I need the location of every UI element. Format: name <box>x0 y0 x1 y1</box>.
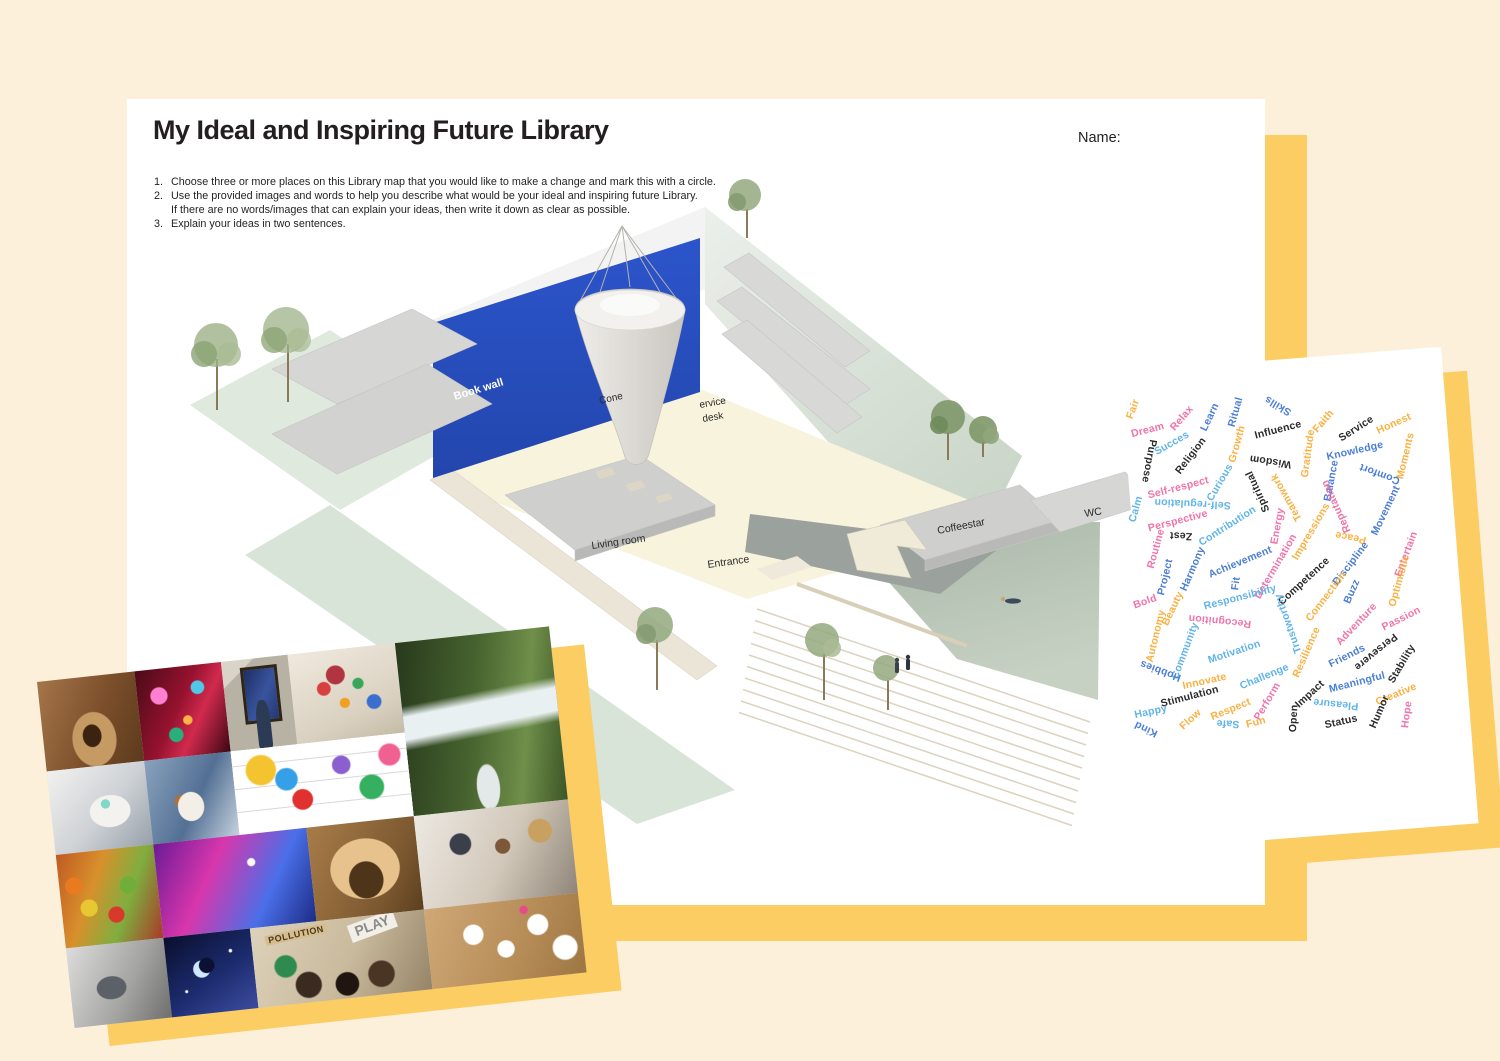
group-collaboration-photo <box>414 799 578 909</box>
value-word: Optimistic <box>1386 554 1412 609</box>
word-cloud: FairDreamRelaxLearnRitualSkillsInfluence… <box>1120 347 1479 849</box>
value-word: Zest <box>1170 529 1193 542</box>
value-word: Gratitude <box>1299 429 1317 479</box>
value-word: Comfort <box>1358 461 1402 487</box>
value-word: Self-regulation <box>1155 496 1232 511</box>
value-word: Flow <box>1177 707 1203 733</box>
name-field-label: Name: <box>1078 130 1121 146</box>
man-reading-photo <box>66 938 172 1028</box>
value-word: Relax <box>1168 403 1196 433</box>
value-word: Autonomy <box>1144 609 1168 664</box>
party-lights-photo <box>134 662 231 761</box>
value-word: Passion <box>1380 604 1423 633</box>
person-walking <box>895 658 899 673</box>
value-word: Fun <box>1245 714 1267 731</box>
value-word: Skills <box>1263 393 1294 418</box>
puzzle-pieces-photo <box>424 893 586 989</box>
value-word: Influence <box>1253 418 1302 442</box>
value-word: Hope <box>1399 701 1414 729</box>
value-word: Open <box>1287 704 1301 732</box>
value-word: Learn <box>1198 401 1222 433</box>
museum-painting-photo <box>221 655 297 752</box>
value-word: Motivation <box>1206 638 1261 667</box>
value-word: Movement <box>1369 484 1403 537</box>
value-word: Service <box>1336 413 1375 444</box>
night-sky-moon-photo <box>163 928 259 1017</box>
value-word: Dream <box>1130 420 1166 440</box>
value-word: Challenge <box>1238 661 1291 692</box>
value-word: Safe <box>1216 717 1239 730</box>
dominoes-playroom-photo <box>288 643 405 745</box>
value-word: Status <box>1324 712 1359 731</box>
value-word: Purpose <box>1139 439 1159 484</box>
value-word: Pleasure <box>1313 696 1359 712</box>
protest-sign-text: POLLUTION <box>265 923 328 946</box>
value-word: Adventure <box>1333 600 1379 647</box>
collage-grid: POLLUTIONPLAY <box>37 626 587 1028</box>
value-word: Calm <box>1127 495 1146 524</box>
value-word: Meaningful <box>1328 669 1387 695</box>
meditation-photo <box>307 816 425 921</box>
street-market-photo <box>56 844 163 948</box>
value-word: Fit <box>1229 577 1243 592</box>
pottery-wheel-photo <box>37 671 144 772</box>
waterfall-hiker-photo <box>395 626 567 816</box>
value-word: Stability <box>1386 642 1418 685</box>
value-word: Wisdom <box>1248 453 1291 471</box>
value-word: Ritual <box>1225 396 1245 428</box>
value-word: Humor <box>1367 694 1392 731</box>
petting-dog-photo <box>144 752 240 844</box>
digital-art-room-photo <box>153 828 317 938</box>
value-word: Growth <box>1226 424 1248 464</box>
value-word: Harmony <box>1178 545 1208 593</box>
relaxing-headphones-photo <box>47 761 153 855</box>
value-word: Fair <box>1124 397 1142 420</box>
page-title: My Ideal and Inspiring Future Library <box>153 115 609 146</box>
values-word-card: FairDreamRelaxLearnRitualSkillsInfluence… <box>1120 347 1479 849</box>
person-walking <box>906 655 910 670</box>
photo-collage: POLLUTIONPLAY <box>37 626 587 1028</box>
